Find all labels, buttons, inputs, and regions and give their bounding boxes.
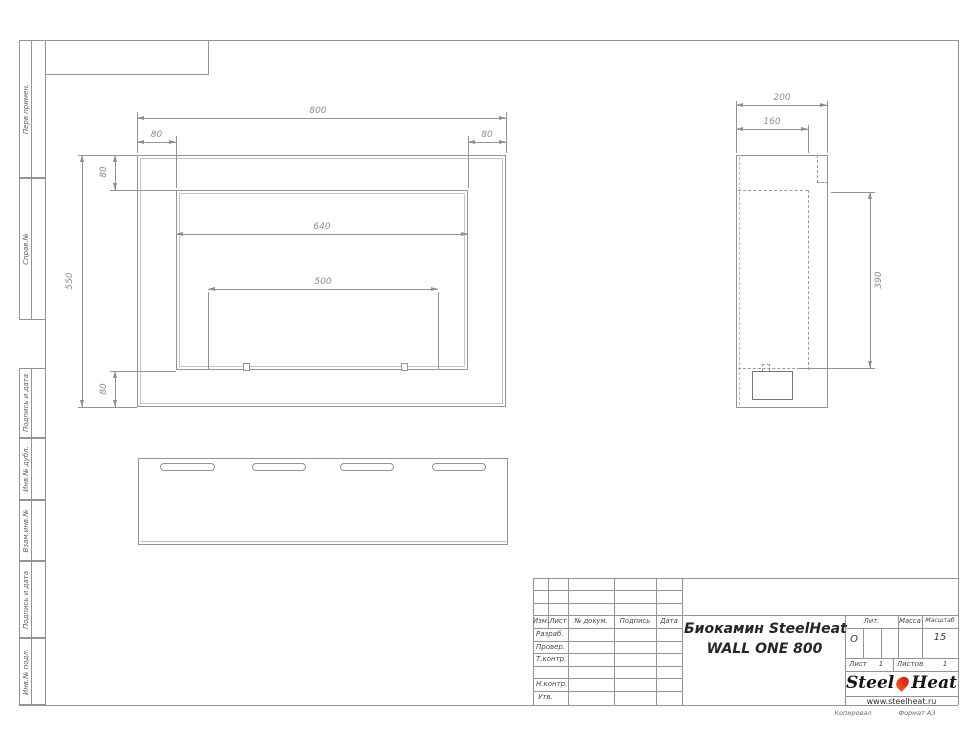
arrowhead <box>137 140 144 144</box>
arrowhead <box>431 287 438 291</box>
sidebar-label: Подпись и дата <box>22 571 30 629</box>
sidebar-cell: Подпись и дата <box>19 368 46 438</box>
title-block-line <box>533 628 682 629</box>
mass-label: Масса <box>898 617 922 625</box>
dim-front-width-total: 800 <box>288 106 348 116</box>
arrowhead <box>801 127 808 131</box>
title-block-line <box>533 691 682 692</box>
dimension-line <box>736 129 808 130</box>
sidebar-cell: Справ.№ <box>19 178 46 320</box>
burner-box-tab <box>762 364 770 371</box>
sheet-value: 1 <box>872 660 890 668</box>
arrowhead <box>113 371 117 378</box>
extension-line <box>808 125 809 153</box>
extension-line <box>438 292 439 370</box>
sidebar-label: Инв.№ подл. <box>22 648 30 694</box>
sidebar-cell: Перв.примен. <box>19 40 46 178</box>
extension-line <box>78 407 137 408</box>
divider <box>31 562 32 637</box>
arrowhead <box>499 140 506 144</box>
arrowhead <box>137 116 144 120</box>
divider <box>31 179 32 319</box>
document-title-line1: Биокамин SteelHeat <box>684 621 845 637</box>
dimension-line <box>82 155 83 407</box>
change-col-list: Лист <box>548 617 568 625</box>
dim-front-flange-bottom: 80 <box>99 374 109 404</box>
extension-line <box>110 371 176 372</box>
arrowhead <box>80 155 84 162</box>
role-developed: Разраб. <box>536 630 564 638</box>
title-block-line <box>863 628 864 658</box>
extension-line <box>110 190 176 191</box>
sidebar-cell: Инв.№ дубл. <box>19 438 46 500</box>
title-block-line <box>533 590 682 591</box>
extension-line <box>208 292 209 370</box>
flame-icon <box>894 674 912 692</box>
dim-side-opening-height: 390 <box>874 265 884 295</box>
arrowhead <box>208 287 215 291</box>
bottom-view-edge-line <box>140 541 506 542</box>
vent-slot <box>340 463 394 471</box>
sheets-value: 1 <box>934 660 956 668</box>
dimension-line <box>176 234 468 235</box>
burner-box <box>752 371 793 400</box>
role-approved: Утв. <box>538 693 553 701</box>
dimension-line <box>208 289 438 290</box>
dim-front-opening-width: 640 <box>292 222 352 232</box>
designation-cell-line <box>45 74 209 75</box>
lit-label: Лит. <box>845 617 898 625</box>
arrowhead <box>736 103 743 107</box>
title-block-line <box>533 641 682 642</box>
dim-side-depth-inner: 160 <box>742 117 802 127</box>
arrowhead <box>468 140 475 144</box>
arrowhead <box>820 103 827 107</box>
dimension-line <box>736 105 827 106</box>
arrowhead <box>461 232 468 236</box>
extension-line <box>827 101 828 153</box>
mounting-bracket <box>817 155 828 183</box>
role-tcontrol: Т.контр. <box>536 655 566 663</box>
change-col-date: Дата <box>656 617 682 625</box>
title-block-line <box>845 628 958 629</box>
title-block-line <box>533 666 682 667</box>
dim-front-flange-left: 80 <box>138 130 175 140</box>
dim-front-height-total: 550 <box>65 266 75 296</box>
burner-tab <box>243 363 250 371</box>
vent-slot <box>252 463 306 471</box>
dim-front-flange-top: 80 <box>99 157 109 187</box>
arrowhead <box>113 155 117 162</box>
document-title-line2: WALL ONE 800 <box>684 641 845 657</box>
change-col-izm: Изм. <box>533 617 548 625</box>
hidden-line <box>808 190 809 370</box>
scale-label: Масштаб <box>922 617 958 624</box>
divider <box>31 369 32 437</box>
sidebar-cell: Инв.№ подл. <box>19 638 46 705</box>
arrowhead <box>113 183 117 190</box>
arrowhead <box>868 192 872 199</box>
sidebar-cell: Взам.инв.№ <box>19 500 46 561</box>
vent-slot <box>160 463 215 471</box>
arrowhead <box>169 140 176 144</box>
vent-slot <box>432 463 486 471</box>
frame-line <box>958 40 959 705</box>
extension-line <box>797 368 875 369</box>
sheet-label: Лист <box>846 660 870 668</box>
extension-line <box>506 112 507 153</box>
arrowhead <box>499 116 506 120</box>
dim-front-burner-width: 500 <box>293 277 353 287</box>
logo-site-url: www.steelheat.ru <box>845 697 958 706</box>
designation-cell-line <box>208 40 209 74</box>
change-col-docnum: № докум. <box>568 617 614 625</box>
extension-line <box>176 136 177 188</box>
hidden-line <box>738 190 808 191</box>
format-label: Формат А3 <box>882 709 952 717</box>
drawing-sheet: Перв.примен. Справ.№ Подпись и дата Инв.… <box>0 0 970 749</box>
divider <box>31 41 32 177</box>
lit-value: О <box>845 634 863 645</box>
sidebar-label: Подпись и дата <box>22 374 30 432</box>
logo-word-heat: Heat <box>911 673 957 693</box>
dimension-line <box>870 192 871 368</box>
title-block-line <box>845 658 958 659</box>
dim-side-depth-total: 200 <box>752 93 812 103</box>
arrowhead <box>736 127 743 131</box>
bottom-view-outline <box>138 458 508 545</box>
title-block-line <box>682 578 683 705</box>
title-block-line <box>881 628 882 658</box>
sidebar-cell: Подпись и дата <box>19 561 46 638</box>
arrowhead <box>113 400 117 407</box>
logo-word-steel: Steel <box>846 673 894 693</box>
arrowhead <box>176 232 183 236</box>
title-block-line <box>533 615 958 616</box>
scale-value: 15 <box>922 632 958 643</box>
frame-line <box>19 705 958 706</box>
sheets-label: Листов <box>895 660 925 668</box>
divider <box>31 501 32 560</box>
frame-line <box>19 40 958 41</box>
steelheat-logo: Steel Heat <box>845 671 958 695</box>
sidebar-label: Взам.инв.№ <box>22 509 30 552</box>
role-checked: Провер. <box>536 643 565 651</box>
title-block-line <box>533 578 958 579</box>
change-col-signature: Подпись <box>614 617 656 625</box>
copied-label: Копировал <box>818 709 888 717</box>
sidebar-label: Инв.№ дубл. <box>22 446 30 492</box>
dimension-line <box>137 118 506 119</box>
sidebar-label: Перв.примен. <box>22 84 30 134</box>
burner-tab <box>401 363 408 371</box>
sidebar-label: Справ.№ <box>22 233 30 265</box>
title-block-line <box>533 603 682 604</box>
title-block-line <box>533 653 682 654</box>
title-block-line <box>533 678 682 679</box>
divider <box>31 639 32 704</box>
role-ncontrol: Н.контр. <box>536 680 567 688</box>
arrowhead <box>868 361 872 368</box>
dim-front-flange-right: 80 <box>468 130 506 140</box>
arrowhead <box>80 400 84 407</box>
title-block-line <box>893 658 894 671</box>
divider <box>31 439 32 499</box>
extension-line <box>78 155 137 156</box>
